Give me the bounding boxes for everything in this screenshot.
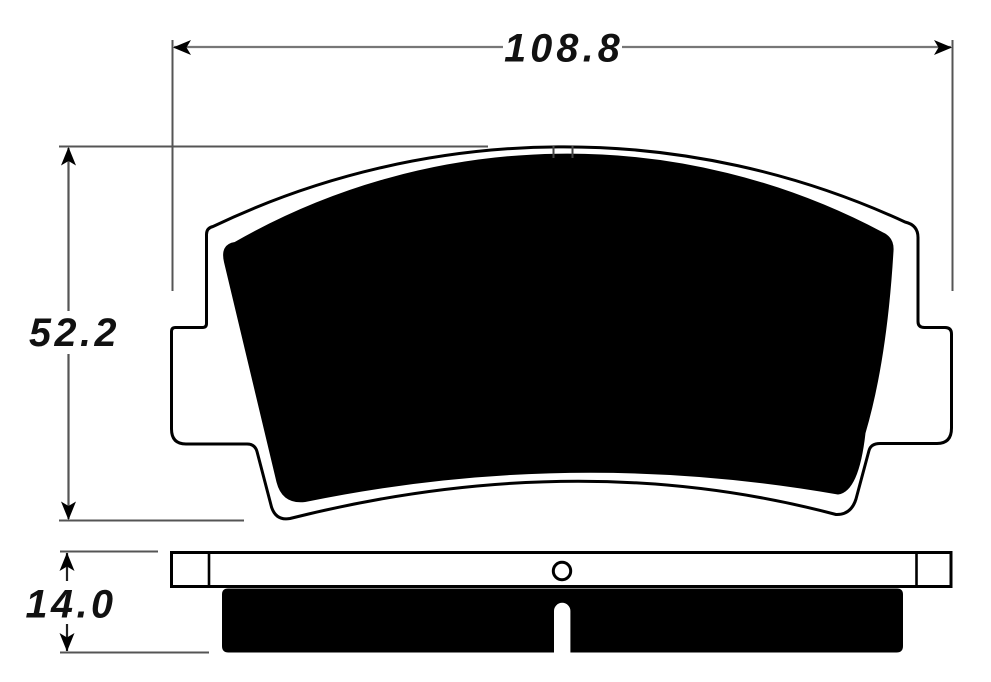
svg-text:14.0: 14.0 [26, 583, 117, 627]
svg-text:52.2: 52.2 [29, 311, 120, 355]
svg-text:108.8: 108.8 [504, 27, 624, 71]
